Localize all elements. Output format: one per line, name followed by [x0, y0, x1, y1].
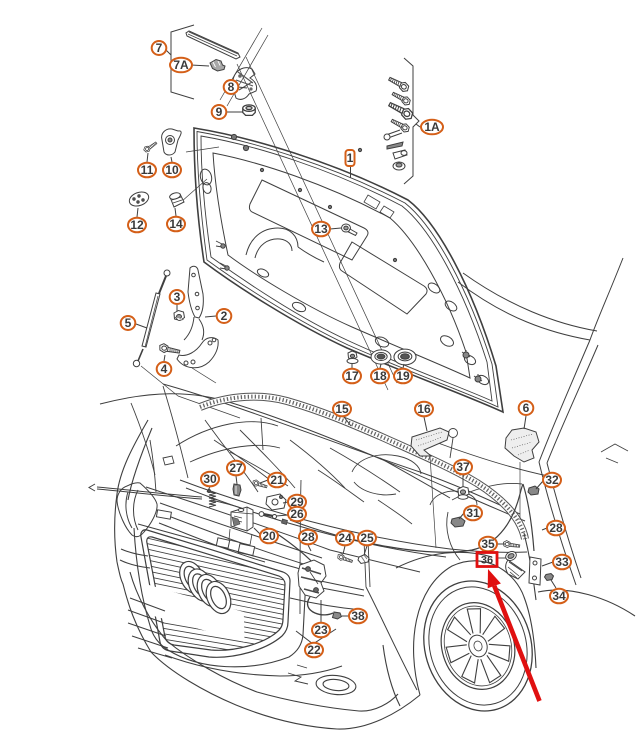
svg-text:38: 38 [351, 609, 365, 623]
svg-text:33: 33 [555, 555, 569, 569]
svg-text:28: 28 [301, 530, 315, 544]
svg-text:22: 22 [307, 643, 321, 657]
svg-text:6: 6 [523, 401, 530, 415]
svg-text:28: 28 [549, 521, 563, 535]
svg-text:21: 21 [270, 473, 284, 487]
svg-text:7A: 7A [173, 58, 189, 72]
svg-text:1A: 1A [424, 120, 440, 134]
svg-text:10: 10 [165, 163, 179, 177]
svg-text:14: 14 [169, 217, 183, 231]
svg-text:35: 35 [481, 537, 495, 551]
svg-text:2: 2 [221, 309, 228, 323]
svg-text:3: 3 [174, 290, 181, 304]
svg-text:12: 12 [130, 218, 144, 232]
svg-text:19: 19 [396, 369, 410, 383]
svg-text:18: 18 [373, 369, 387, 383]
svg-text:37: 37 [456, 460, 470, 474]
svg-text:27: 27 [229, 461, 243, 475]
svg-text:34: 34 [552, 589, 566, 603]
svg-text:26: 26 [290, 507, 304, 521]
svg-text:15: 15 [335, 402, 349, 416]
svg-text:36: 36 [481, 555, 493, 567]
svg-text:1: 1 [347, 151, 354, 165]
svg-text:9: 9 [216, 105, 223, 119]
svg-text:11: 11 [141, 163, 154, 177]
svg-text:32: 32 [545, 473, 559, 487]
svg-text:17: 17 [345, 369, 359, 383]
svg-text:13: 13 [314, 222, 328, 236]
svg-text:16: 16 [417, 402, 431, 416]
svg-text:20: 20 [262, 529, 276, 543]
svg-text:23: 23 [314, 623, 328, 637]
svg-text:24: 24 [338, 531, 352, 545]
svg-text:5: 5 [125, 316, 132, 330]
svg-text:7: 7 [156, 41, 163, 55]
svg-text:4: 4 [161, 362, 168, 376]
svg-text:31: 31 [466, 506, 480, 520]
svg-text:30: 30 [203, 472, 217, 486]
svg-text:25: 25 [360, 531, 374, 545]
svg-text:8: 8 [228, 80, 235, 94]
